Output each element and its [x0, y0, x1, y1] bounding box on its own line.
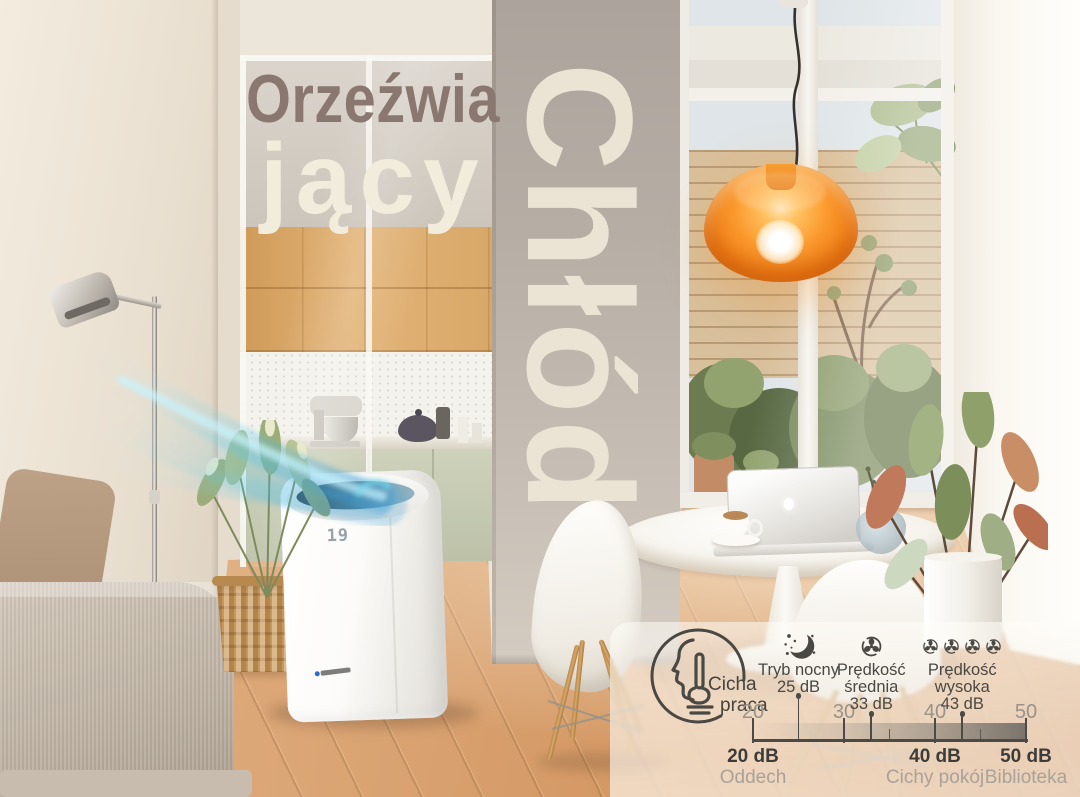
fan-icon — [860, 635, 883, 658]
noise-infographic-panel: Cicha praca 20304050 Tryb nocny25 dB Prę… — [610, 622, 1080, 797]
db-marker-stem — [798, 698, 800, 741]
coffee-surface — [723, 511, 748, 520]
reference-db: 20 dB — [720, 746, 787, 767]
coffee-cup — [712, 512, 762, 548]
reference-40: 40 dBCichy pokój — [886, 746, 984, 789]
mode-name: wysoka — [896, 679, 1028, 696]
ceiling-mount — [780, 0, 808, 8]
reference-db: 50 dB — [985, 746, 1067, 767]
mode-icons — [896, 630, 1028, 662]
reference-50: 50 dBBiblioteka — [985, 746, 1067, 789]
headline-vertical: Chłód — [505, 55, 655, 525]
lamp-cord — [772, 0, 816, 178]
reference-desc: Cichy pokój — [886, 767, 984, 789]
scene: Orzeźwia jący Chłód — [0, 0, 1080, 797]
mode-column-2: Prędkośćwysoka43 dB — [896, 630, 1028, 713]
cup-handle — [747, 519, 763, 537]
noise-scale-baseline — [752, 739, 1028, 742]
fan-icon — [922, 638, 939, 655]
airflow-stream — [96, 336, 416, 526]
db-marker-dot — [869, 711, 875, 717]
reference-db: 40 dB — [886, 746, 984, 767]
db-marker-dot — [960, 711, 966, 717]
db-marker-stem — [870, 716, 872, 741]
db-marker-stem — [961, 716, 963, 741]
scale-minor-tick — [980, 729, 982, 739]
scale-tick-label: 20 — [742, 702, 764, 722]
fan-icon — [943, 638, 960, 655]
wall-above-kitchen — [240, 0, 494, 58]
sofa-seat — [0, 770, 252, 797]
reference-desc: Biblioteka — [985, 767, 1067, 789]
mode-name: Prędkość — [896, 662, 1028, 679]
ficus-pot-rim — [924, 552, 1002, 562]
lamp-sheen — [734, 172, 826, 212]
headline-word2: jący — [260, 122, 487, 237]
reference-20: 20 dBOddech — [720, 746, 787, 789]
db-marker-dot — [796, 693, 802, 699]
reference-desc: Oddech — [720, 767, 787, 789]
scale-minor-tick — [889, 729, 891, 739]
sofa-armrest — [0, 582, 234, 797]
fan-icon — [985, 638, 1002, 655]
lamp-bulb — [756, 220, 804, 264]
fan-icon — [964, 638, 981, 655]
